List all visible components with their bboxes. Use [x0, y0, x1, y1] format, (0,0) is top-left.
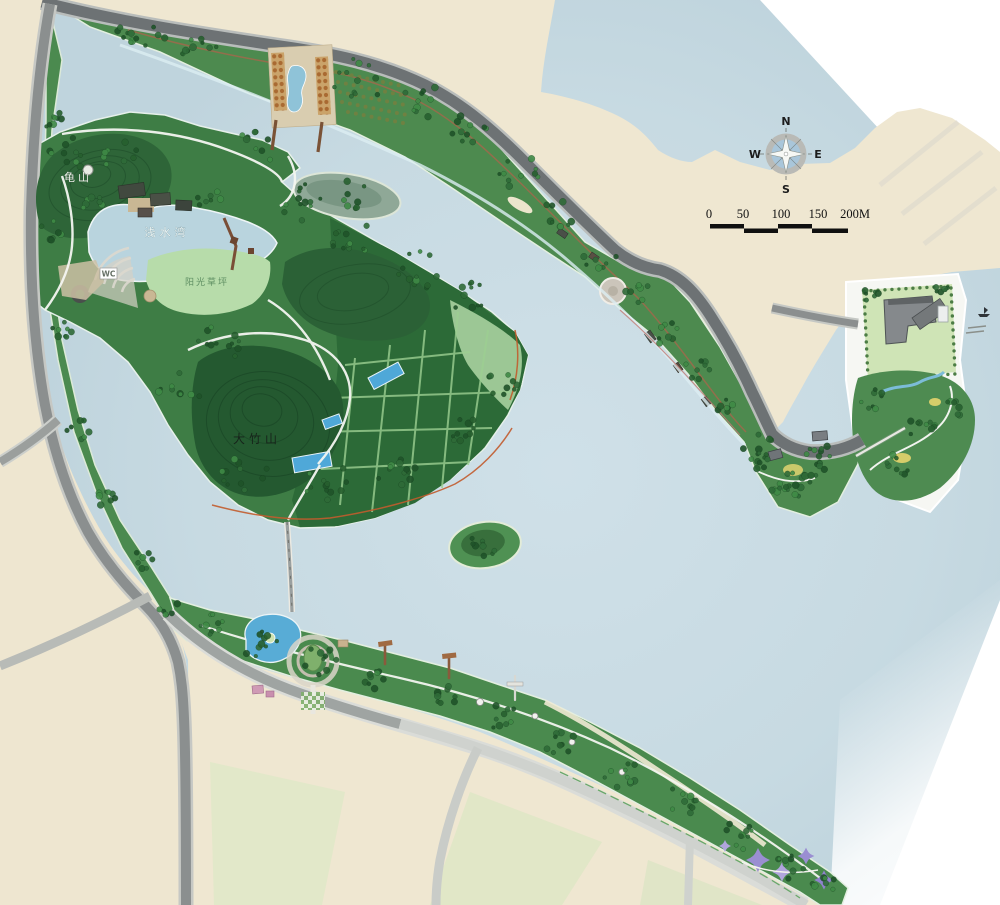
wc-label: WC — [102, 270, 116, 279]
bottom-connector-road — [688, 838, 690, 905]
checker-plaza — [301, 692, 325, 710]
scale-200m: 200M — [840, 207, 870, 221]
scale-150: 150 — [809, 207, 828, 221]
label-bay: 浅水湾 — [145, 225, 190, 239]
compass-east: E — [814, 148, 822, 161]
label-hill-nw: 龟山 — [64, 171, 92, 184]
map-canvas: WC 龟山 浅水湾 阳光草坪 大竹山 N E S W 0 50 100 150 … — [0, 0, 1000, 905]
wc-marker: WC — [100, 268, 117, 279]
compass-south: S — [782, 183, 790, 196]
building-small — [938, 306, 948, 322]
pink-building — [252, 685, 264, 694]
compass-north: N — [781, 115, 790, 128]
compass-west: W — [749, 148, 761, 161]
scale-100: 100 — [772, 207, 791, 221]
label-lawn: 阳光草坪 — [185, 276, 229, 288]
label-hill-central: 大竹山 — [233, 432, 281, 446]
scale-50: 50 — [737, 207, 750, 221]
master-plan-map: WC 龟山 浅水湾 阳光草坪 大竹山 N E S W 0 50 100 150 … — [0, 0, 1000, 905]
scale-0: 0 — [706, 207, 712, 221]
